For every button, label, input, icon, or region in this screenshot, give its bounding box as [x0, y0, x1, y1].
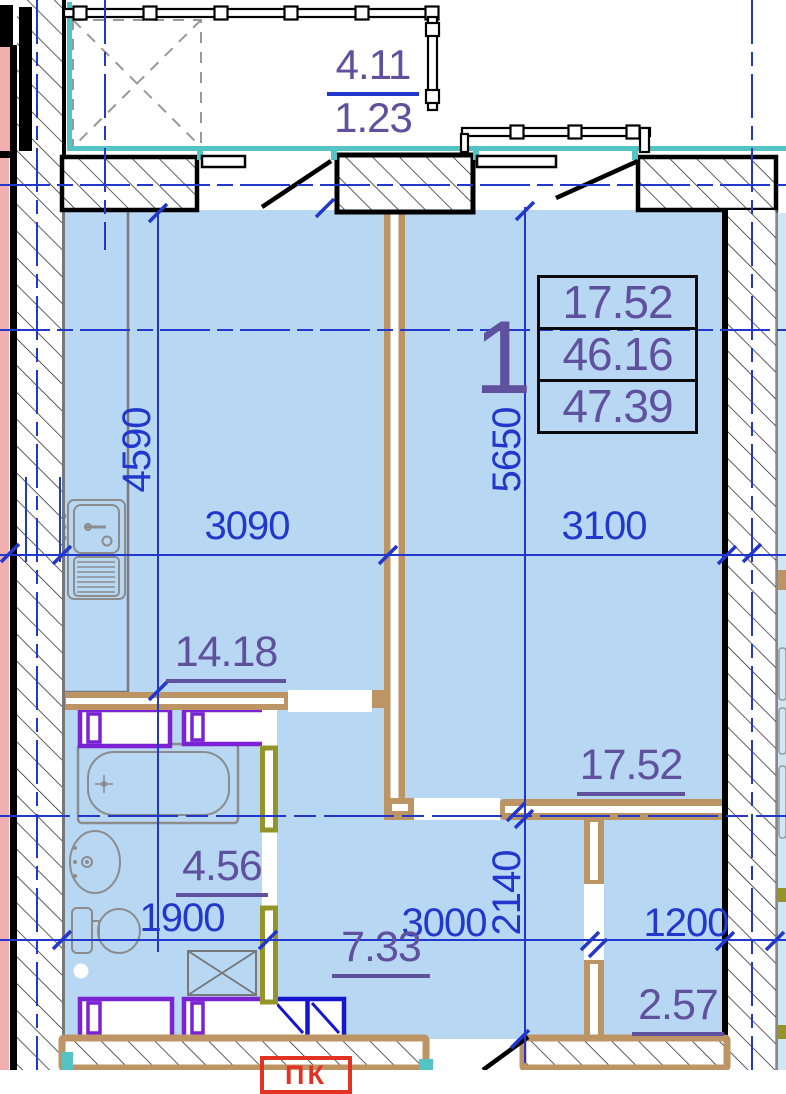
- unit-info-box: 17.52 46.16 47.39: [537, 275, 698, 434]
- balcony-area-denominator: 1.23: [326, 97, 420, 139]
- storage-area-label: 2.57: [632, 984, 724, 1036]
- unit-living-area: 17.52: [540, 278, 695, 330]
- stamp-box: ПК: [260, 1056, 352, 1094]
- dim-kitchen-width: 3090: [191, 506, 303, 546]
- balcony-area-numerator: 4.11: [326, 44, 420, 86]
- unit-total-area: 47.39: [540, 382, 695, 431]
- window-block-blue: [271, 999, 344, 1037]
- dim-storage-width: 1200: [634, 903, 738, 943]
- kitchen-area-label: 14.18: [166, 631, 286, 683]
- living-area-label: 17.52: [577, 744, 685, 796]
- dim-living-height: 5650: [487, 370, 527, 530]
- neighbor-right-strip: [776, 213, 786, 1070]
- column-marker: [74, 964, 89, 979]
- hall-area-label: 7.33: [332, 926, 430, 978]
- floorplan-page: { "plan": { "unit_label": "1", "info_box…: [0, 0, 786, 1070]
- dim-bath-width: 1900: [126, 898, 238, 938]
- dim-storage-height: 2140: [487, 813, 527, 973]
- dim-living-width: 3100: [548, 506, 660, 546]
- balcony-shaft: [73, 20, 201, 147]
- unit-net-area: 46.16: [540, 330, 695, 382]
- bath-area-label: 4.56: [176, 845, 268, 897]
- dim-kitchen-height: 4590: [117, 370, 157, 530]
